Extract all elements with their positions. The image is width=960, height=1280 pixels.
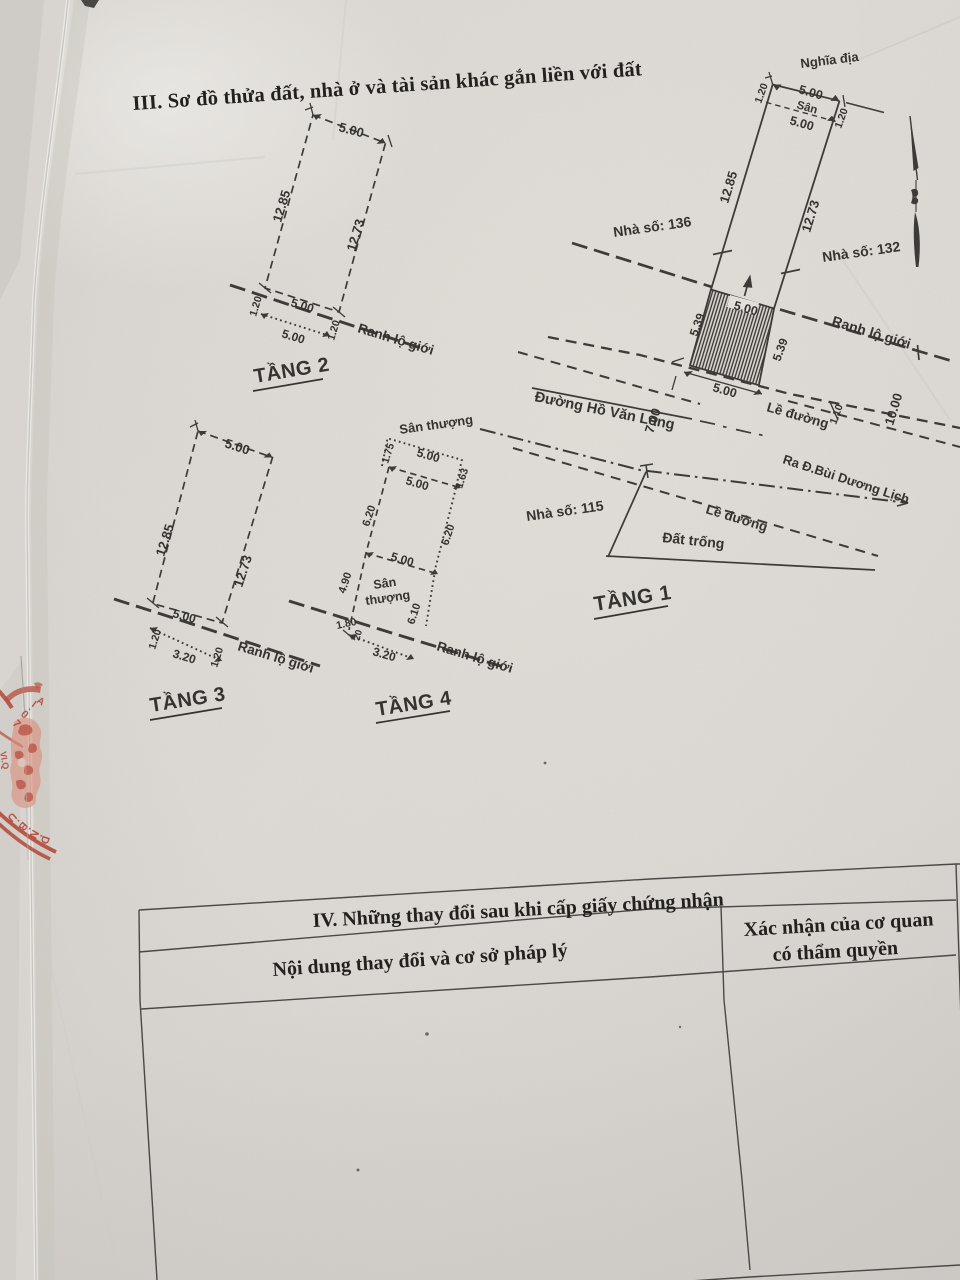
svg-text:VI.Q: VI.Q bbox=[0, 751, 11, 770]
